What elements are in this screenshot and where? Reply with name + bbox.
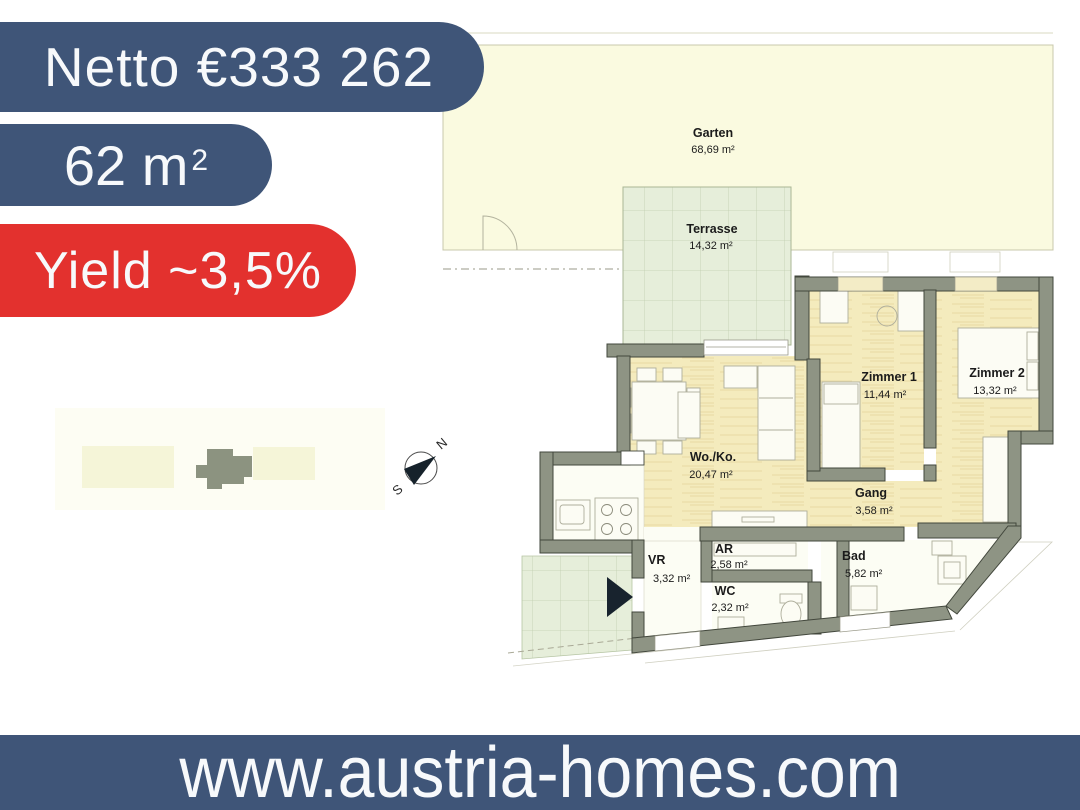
room-area-woko: 20,47 m² <box>689 469 733 481</box>
room-area-gang: 3,58 m² <box>855 505 893 517</box>
yield-badge: Yield ~3,5% <box>0 224 356 317</box>
wardrobe <box>983 437 1009 522</box>
room-area-bad: 5,82 m² <box>845 568 883 580</box>
room-area-wc: 2,32 m² <box>711 602 749 614</box>
room-area-zimmer2: 13,32 m² <box>973 385 1017 397</box>
living-window <box>704 340 788 355</box>
desk <box>898 287 924 331</box>
shaft-floor <box>821 541 837 629</box>
listing-image: N S <box>0 0 1080 810</box>
pillow <box>824 384 858 404</box>
shower-tray <box>851 586 877 610</box>
room-label-zimmer1: Zimmer 1 <box>861 370 917 384</box>
washing-machine <box>938 556 966 584</box>
area-badge: 62 m2 <box>0 124 272 206</box>
shelf <box>820 287 848 323</box>
compass-north-label: N <box>433 435 450 453</box>
sofa-arm <box>724 366 757 388</box>
chair <box>663 441 682 454</box>
washbasin <box>932 541 952 555</box>
kitchen-sink <box>556 500 590 530</box>
room-label-gang: Gang <box>855 486 887 500</box>
stove <box>595 498 638 540</box>
room-area-vr: 3,32 m² <box>653 573 691 585</box>
minimap-building-right <box>253 447 315 480</box>
chair <box>637 368 656 381</box>
site-plan-minimap <box>55 408 385 510</box>
room-label-garten: Garten <box>693 126 733 140</box>
floor-plan: N S <box>0 0 1080 810</box>
room-label-ar: AR <box>715 542 733 556</box>
room-area-ar: 2,58 m² <box>710 559 748 571</box>
minimap-building-left <box>82 446 174 488</box>
compass: N S <box>389 435 450 499</box>
room-area-garten: 68,69 m² <box>691 144 735 156</box>
bedroom1-window <box>838 277 883 291</box>
room-label-zimmer2: Zimmer 2 <box>969 366 1025 380</box>
room-label-woko: Wo./Ko. <box>690 450 736 464</box>
website-url: www.austria-homes.com <box>179 737 900 809</box>
area-badge-value: 62 m <box>64 133 189 198</box>
yield-badge-label: Yield ~3,5% <box>34 241 322 301</box>
room-label-wc: WC <box>715 584 736 598</box>
window-recess <box>833 252 888 272</box>
vr-doorway <box>650 528 688 540</box>
price-badge: Netto €333 262 <box>0 22 484 112</box>
terrace-area <box>623 187 791 345</box>
pillow <box>1027 332 1038 360</box>
room-area-terrasse: 14,32 m² <box>689 240 733 252</box>
room-label-vr: VR <box>648 553 665 567</box>
left-wall-window-box <box>621 451 644 465</box>
bedroom2-window <box>955 277 997 291</box>
pillow <box>1027 362 1038 390</box>
room-label-bad: Bad <box>842 549 866 563</box>
room-area-zimmer1: 11,44 m² <box>864 389 907 401</box>
window-recess <box>950 252 1000 272</box>
sofa <box>758 366 795 460</box>
website-bar: www.austria-homes.com <box>0 735 1080 810</box>
compass-south-label: S <box>389 481 406 498</box>
price-badge-label: Netto €333 262 <box>44 35 434 99</box>
sideboard <box>712 511 807 528</box>
coffee-table <box>678 392 700 438</box>
room-label-terrasse: Terrasse <box>686 222 737 236</box>
chair <box>663 368 682 381</box>
